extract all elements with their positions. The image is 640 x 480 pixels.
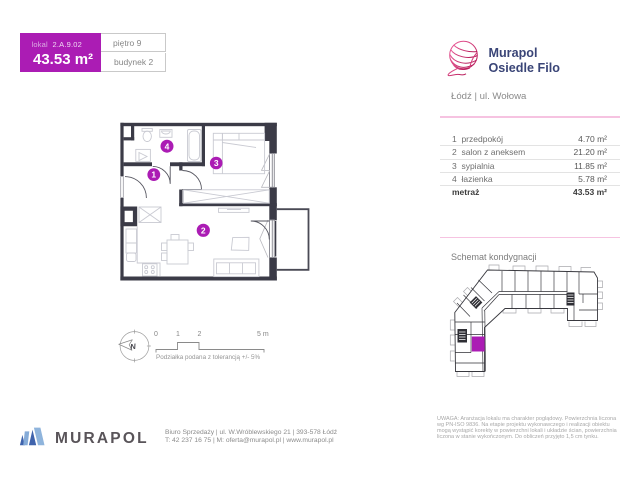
svg-text:1: 1 <box>151 170 156 180</box>
svg-text:N: N <box>130 342 137 352</box>
svg-text:2: 2 <box>201 225 206 235</box>
svg-text:3: 3 <box>214 158 219 168</box>
svg-text:4: 4 <box>165 141 170 151</box>
